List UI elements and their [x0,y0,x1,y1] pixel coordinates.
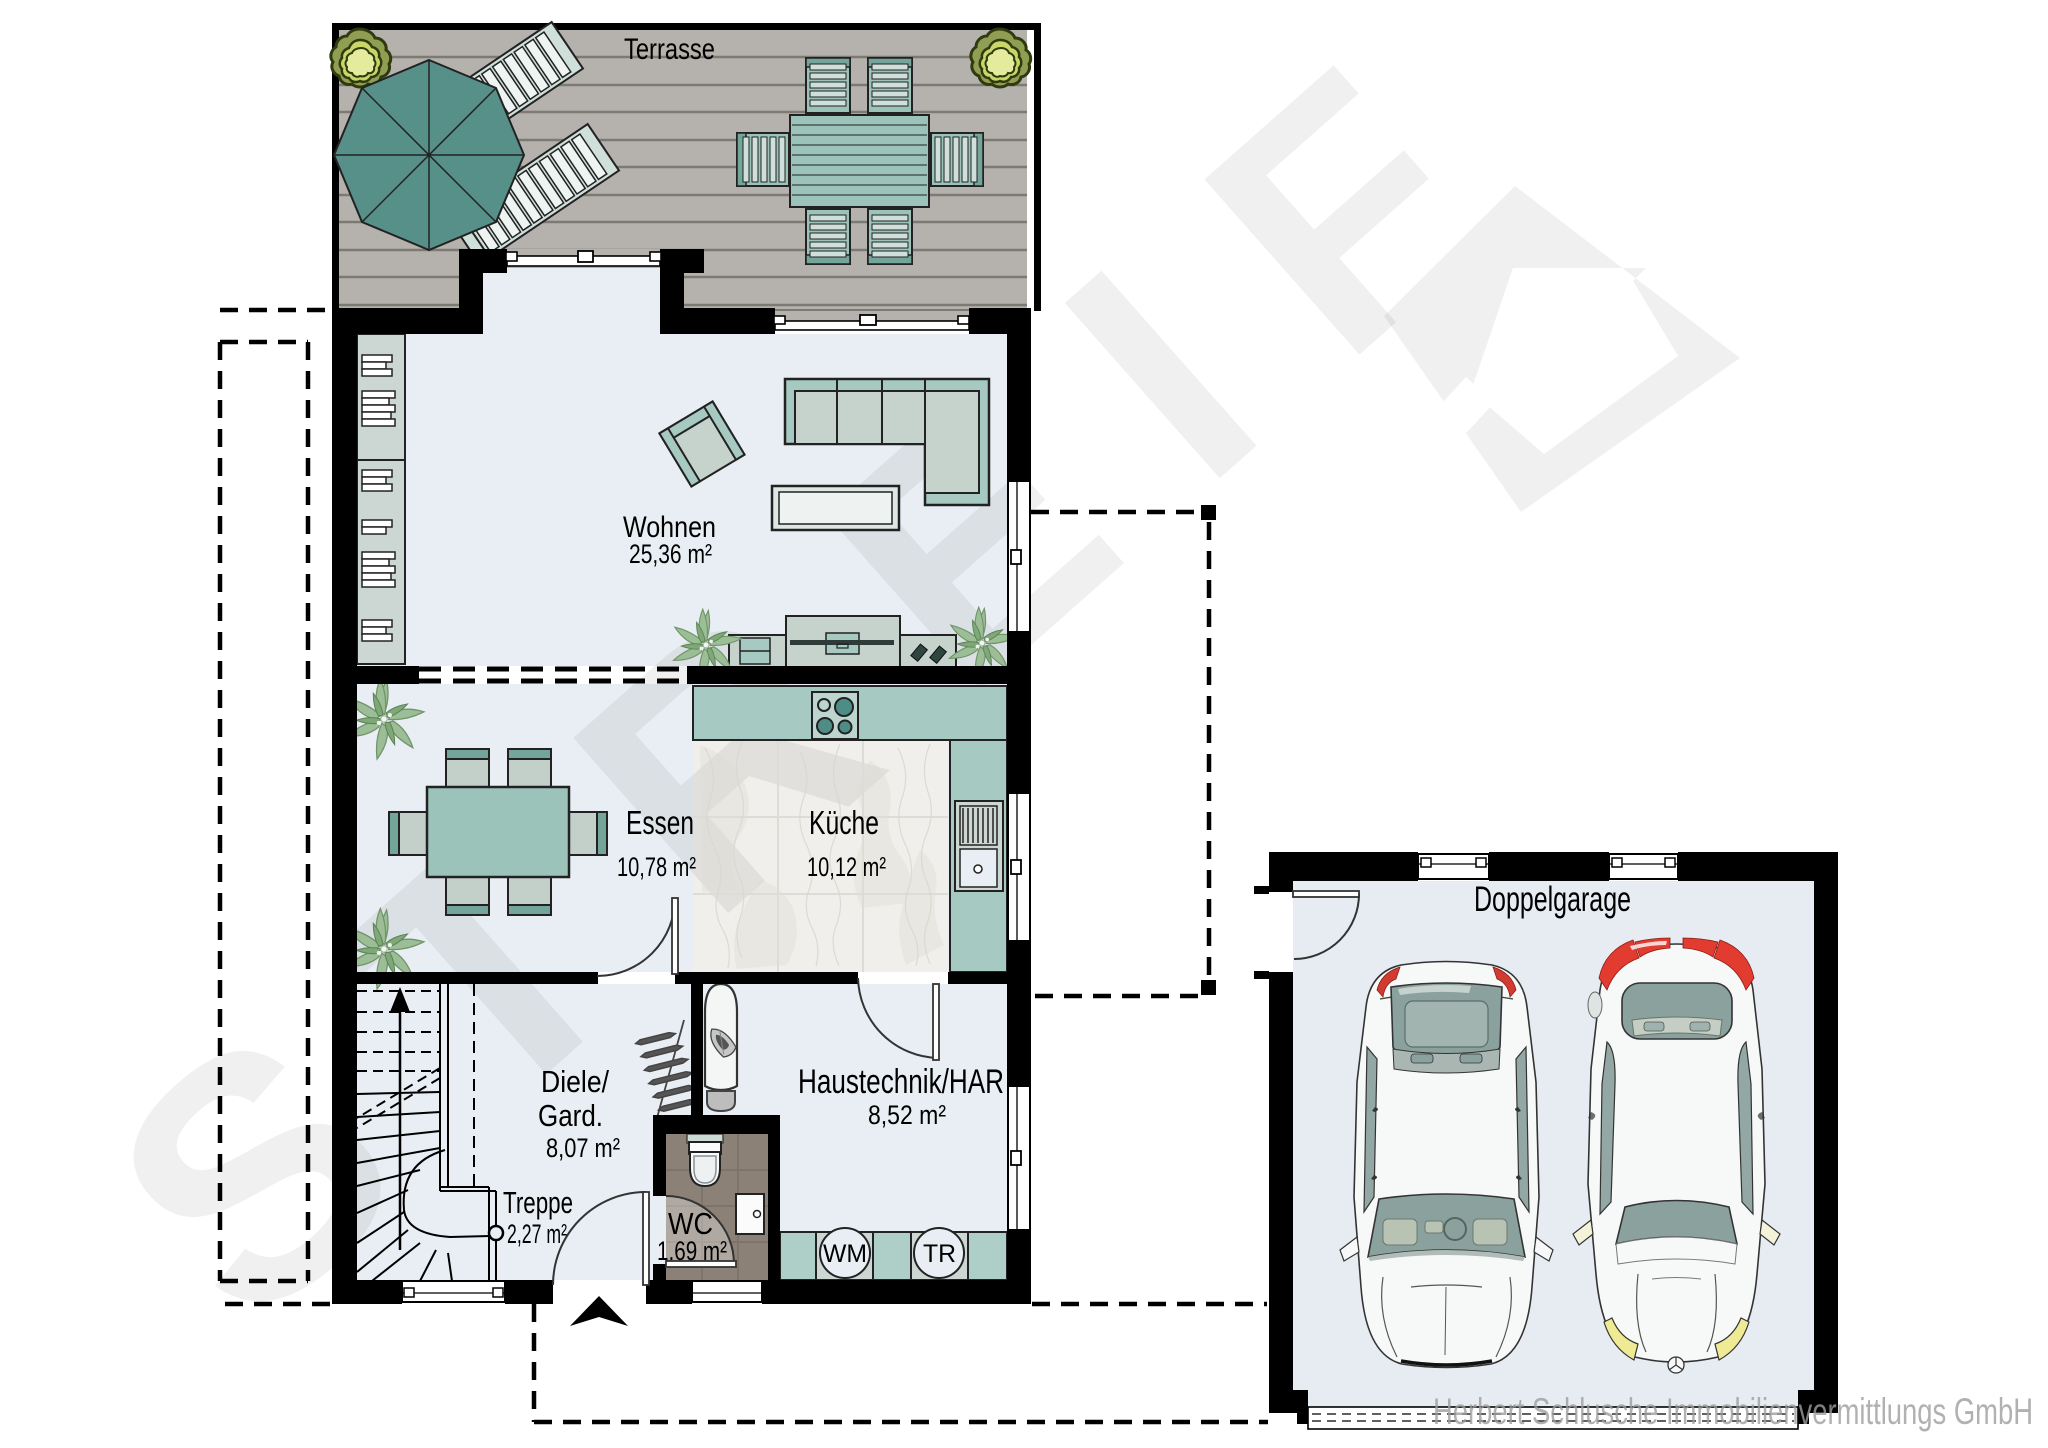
svg-text:Treppe: Treppe [503,1185,573,1220]
svg-text:Herbert Schlusche Immobilienve: Herbert Schlusche Immobilienvermittlungs… [1433,1391,2033,1432]
svg-text:10,78 m²: 10,78 m² [617,852,696,882]
svg-text:Essen: Essen [626,804,694,841]
svg-text:25,36 m²: 25,36 m² [629,539,712,569]
svg-text:2,27 m²: 2,27 m² [507,1219,567,1249]
svg-text:Diele/: Diele/ [541,1064,609,1099]
svg-text:TR: TR [923,1240,956,1268]
svg-text:Gard.: Gard. [538,1098,603,1133]
svg-text:8,07 m²: 8,07 m² [546,1133,620,1163]
svg-text:WM: WM [823,1240,867,1268]
svg-text:8,52 m²: 8,52 m² [868,1100,946,1130]
svg-text:Haustechnik/HAR: Haustechnik/HAR [798,1063,1004,1101]
svg-text:Küche: Küche [809,804,879,841]
svg-text:10,12 m²: 10,12 m² [807,852,886,882]
svg-text:Doppelgarage: Doppelgarage [1474,880,1631,919]
svg-text:Terrasse: Terrasse [624,33,715,66]
